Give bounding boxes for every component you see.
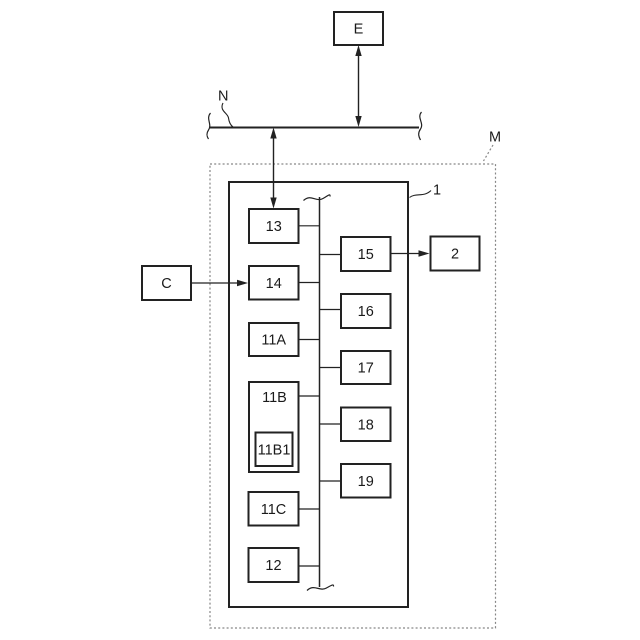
svg-text:M: M	[489, 130, 501, 146]
svg-text:11B1: 11B1	[258, 443, 291, 459]
svg-text:14: 14	[266, 276, 282, 292]
svg-text:11B: 11B	[262, 390, 287, 406]
svg-text:11A: 11A	[261, 333, 286, 349]
svg-text:18: 18	[358, 418, 374, 434]
svg-text:1: 1	[433, 183, 441, 199]
svg-text:N: N	[218, 89, 228, 105]
svg-text:2: 2	[451, 247, 459, 263]
svg-text:E: E	[354, 22, 364, 38]
svg-text:12: 12	[265, 558, 281, 574]
svg-text:17: 17	[358, 361, 374, 377]
svg-text:13: 13	[266, 219, 282, 235]
svg-text:11C: 11C	[261, 502, 287, 518]
svg-text:15: 15	[358, 247, 374, 263]
svg-text:19: 19	[358, 474, 374, 490]
svg-text:C: C	[161, 276, 171, 292]
svg-text:16: 16	[358, 304, 374, 320]
